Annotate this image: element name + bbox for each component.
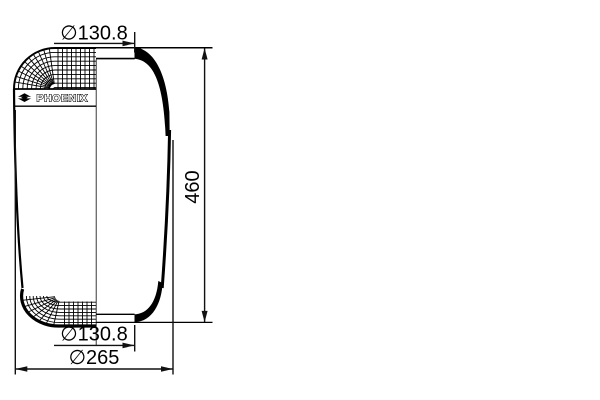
dim-bottom-diameter-label: ∅130.8 xyxy=(60,324,127,346)
air-spring-drawing: PHOENIX ∅130.8 460 ∅130.8 ∅265 xyxy=(0,0,600,400)
phoenix-logo: PHOENIX xyxy=(17,93,88,105)
dim-outer-diameter-label: ∅265 xyxy=(69,347,120,369)
fabric-mesh-top xyxy=(15,48,96,89)
phoenix-diamond-icon xyxy=(17,93,33,102)
dim-top-diameter-label: ∅130.8 xyxy=(60,23,127,45)
drawing-canvas: PHOENIX ∅130.8 460 ∅130.8 ∅265 xyxy=(0,0,600,400)
fabric-mesh-bottom xyxy=(23,296,96,326)
phoenix-logo-text: PHOENIX xyxy=(37,93,88,105)
dim-height-label: 460 xyxy=(182,170,204,203)
